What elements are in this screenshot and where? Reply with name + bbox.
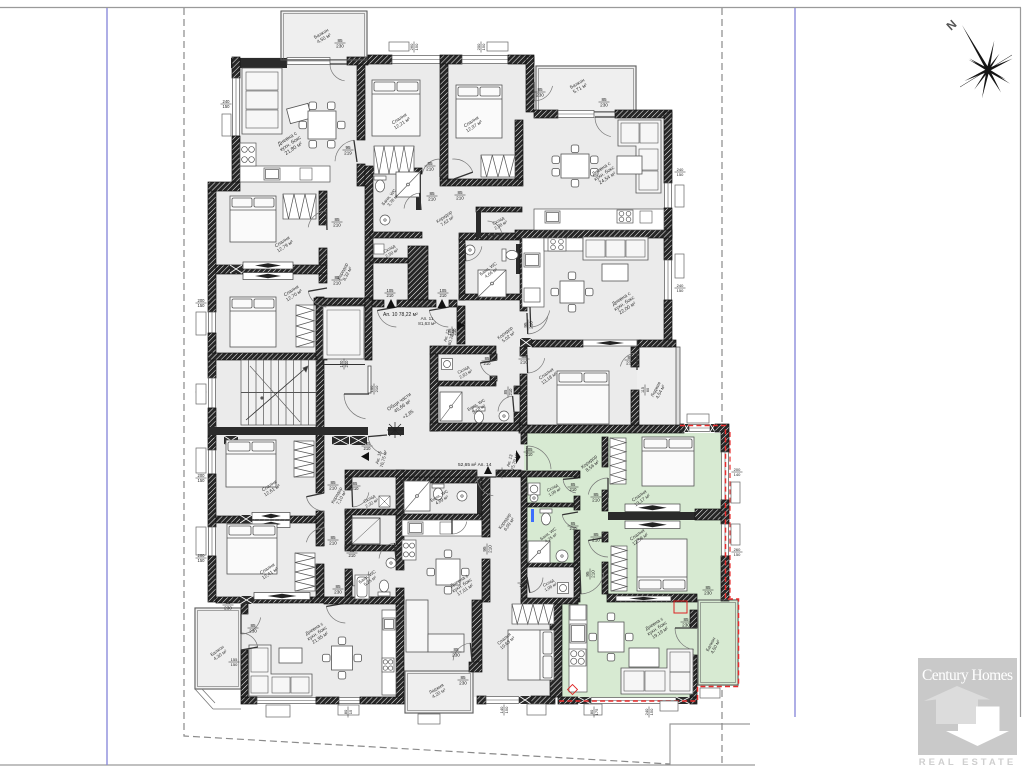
svg-text:85: 85 <box>330 535 336 540</box>
svg-text:210: 210 <box>502 469 507 477</box>
svg-text:85: 85 <box>429 191 435 196</box>
svg-text:230: 230 <box>704 591 712 596</box>
svg-text:230: 230 <box>249 629 257 634</box>
svg-text:240: 240 <box>223 99 231 104</box>
svg-text:85: 85 <box>460 675 466 680</box>
svg-text:85: 85 <box>337 38 343 43</box>
svg-text:230: 230 <box>336 44 344 49</box>
svg-text:200: 200 <box>198 553 206 558</box>
svg-text:210: 210 <box>570 526 578 531</box>
svg-text:150: 150 <box>649 708 654 715</box>
svg-text:85: 85 <box>250 623 256 628</box>
svg-text:210: 210 <box>484 361 492 366</box>
svg-text:85: 85 <box>485 356 490 361</box>
svg-text:210: 210 <box>488 545 493 553</box>
svg-text:210: 210 <box>364 446 372 451</box>
svg-text:210: 210 <box>508 388 513 396</box>
svg-text:52,65 м² Ап. 14: 52,65 м² Ап. 14 <box>458 462 492 468</box>
svg-text:210: 210 <box>570 487 578 492</box>
svg-text:210: 210 <box>352 486 360 491</box>
svg-text:210: 210 <box>374 385 379 392</box>
svg-text:85: 85 <box>521 354 527 359</box>
svg-text:219: 219 <box>344 151 352 156</box>
svg-text:210: 210 <box>440 293 448 298</box>
svg-text:210: 210 <box>529 321 534 329</box>
svg-text:85: 85 <box>537 87 543 92</box>
svg-text:85: 85 <box>225 600 231 605</box>
svg-text:210: 210 <box>526 452 534 457</box>
svg-text:230: 230 <box>682 623 690 628</box>
svg-text:85: 85 <box>457 190 463 195</box>
svg-text:210: 210 <box>329 541 337 546</box>
svg-text:150: 150 <box>223 104 231 109</box>
svg-text:150: 150 <box>231 662 238 667</box>
svg-text:85: 85 <box>503 389 508 394</box>
svg-text:210: 210 <box>591 570 596 578</box>
svg-text:85: 85 <box>521 578 526 583</box>
svg-text:85: 85 <box>593 532 599 537</box>
svg-text:230: 230 <box>626 361 634 366</box>
svg-text:150: 150 <box>198 303 206 308</box>
svg-text:240: 240 <box>344 360 349 368</box>
svg-text:210: 210 <box>329 486 337 491</box>
svg-text:85: 85 <box>353 481 358 486</box>
svg-text:230: 230 <box>224 606 232 611</box>
svg-text:210: 210 <box>456 196 464 201</box>
svg-text:60: 60 <box>646 388 650 392</box>
svg-text:210: 210 <box>428 197 436 202</box>
svg-text:230: 230 <box>600 103 608 108</box>
svg-text:Ап. 10 78,22 м²: Ап. 10 78,22 м² <box>383 312 418 318</box>
svg-text:140: 140 <box>734 472 741 477</box>
svg-text:85: 85 <box>334 275 340 280</box>
svg-text:210: 210 <box>520 583 528 588</box>
svg-text:105: 105 <box>440 288 448 293</box>
svg-text:105: 105 <box>526 447 534 452</box>
svg-text:210: 210 <box>592 538 600 543</box>
svg-text:210: 210 <box>333 223 341 228</box>
svg-text:95: 95 <box>482 546 487 552</box>
svg-text:95: 95 <box>345 145 351 150</box>
svg-text:115: 115 <box>641 387 645 393</box>
svg-text:150: 150 <box>414 43 419 50</box>
svg-text:105: 105 <box>497 469 502 477</box>
svg-text:150: 150 <box>198 478 206 483</box>
svg-text:95: 95 <box>523 322 528 328</box>
svg-text:210: 210 <box>333 281 341 286</box>
svg-text:200: 200 <box>198 473 206 478</box>
svg-text:105: 105 <box>387 288 395 293</box>
svg-text:85: 85 <box>350 548 355 553</box>
svg-text:210: 210 <box>592 498 600 503</box>
svg-text:85: 85 <box>335 584 341 589</box>
svg-text:150: 150 <box>198 558 206 563</box>
svg-text:150: 150 <box>481 43 486 50</box>
svg-text:85: 85 <box>601 97 607 102</box>
svg-text:REAL ESTATE: REAL ESTATE <box>919 757 1016 768</box>
svg-text:85: 85 <box>683 617 689 622</box>
svg-text:230: 230 <box>452 653 460 658</box>
svg-text:150: 150 <box>734 552 741 557</box>
svg-text:85: 85 <box>571 521 576 526</box>
svg-text:85: 85 <box>330 480 336 485</box>
svg-text:150: 150 <box>504 706 509 713</box>
svg-text:210: 210 <box>426 167 434 172</box>
svg-text:Century Homes: Century Homes <box>922 667 1013 684</box>
svg-text:15: 15 <box>348 709 353 714</box>
svg-text:85: 85 <box>705 585 711 590</box>
svg-text:230: 230 <box>459 681 467 686</box>
svg-text:85: 85 <box>427 161 433 166</box>
svg-text:230: 230 <box>334 590 342 595</box>
svg-text:150: 150 <box>677 172 684 177</box>
svg-text:85: 85 <box>453 647 459 652</box>
svg-text:200: 200 <box>198 298 206 303</box>
svg-text:81,63 м²: 81,63 м² <box>418 321 436 326</box>
svg-text:85: 85 <box>593 492 599 497</box>
svg-text:120: 120 <box>339 360 344 368</box>
svg-text:175: 175 <box>594 708 599 715</box>
svg-text:85: 85 <box>334 217 340 222</box>
svg-text:85: 85 <box>571 482 576 487</box>
svg-text:210: 210 <box>387 293 395 298</box>
svg-text:210: 210 <box>520 360 528 365</box>
svg-text:85: 85 <box>627 355 633 360</box>
svg-text:230: 230 <box>536 93 544 98</box>
svg-text:95: 95 <box>585 571 590 577</box>
svg-text:210: 210 <box>349 553 357 558</box>
svg-text:105: 105 <box>447 328 452 336</box>
svg-text:150: 150 <box>677 288 684 293</box>
svg-text:210: 210 <box>452 328 457 336</box>
